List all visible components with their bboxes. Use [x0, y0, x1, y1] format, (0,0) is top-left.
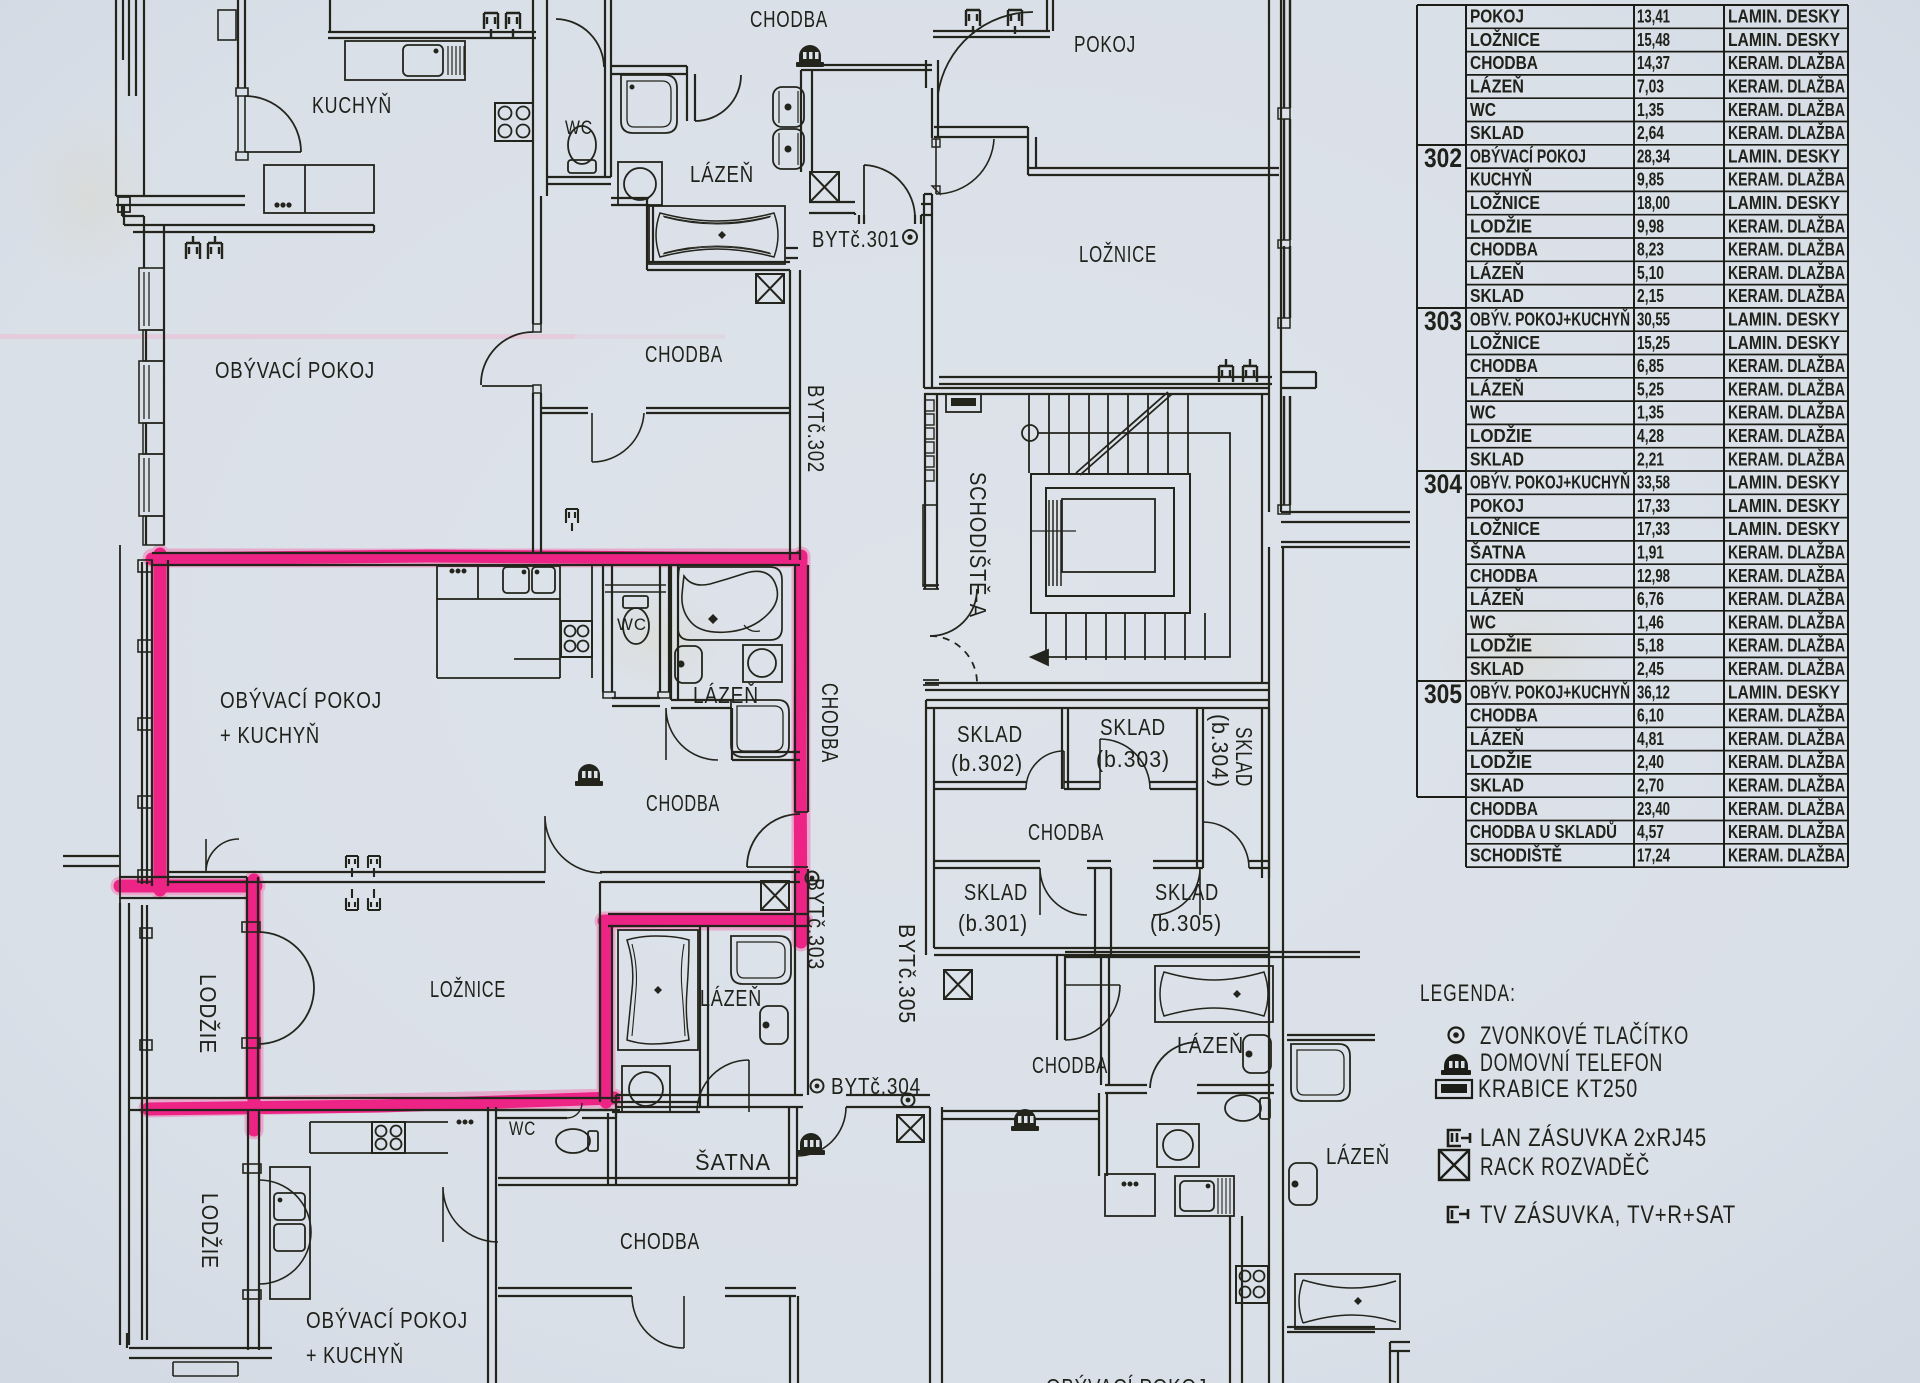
svg-text:KERAM. DLAŽBA: KERAM. DLAŽBA [1728, 611, 1845, 632]
svg-text:(b.305): (b.305) [1150, 910, 1222, 936]
svg-text:CHODBA: CHODBA [750, 6, 828, 32]
svg-text:2,70: 2,70 [1637, 776, 1664, 796]
svg-text:2,64: 2,64 [1637, 123, 1664, 143]
svg-text:CHODBA: CHODBA [1470, 356, 1538, 376]
svg-text:KERAM. DLAŽBA: KERAM. DLAŽBA [1728, 658, 1845, 679]
svg-text:CHODBA: CHODBA [1470, 566, 1538, 586]
svg-text:LÁZEŇ: LÁZEŇ [700, 985, 762, 1011]
svg-text:CHODBA: CHODBA [1470, 799, 1538, 819]
svg-text:KERAM. DLAŽBA: KERAM. DLAŽBA [1728, 402, 1845, 423]
svg-text:LAMIN. DESKY: LAMIN. DESKY [1728, 7, 1840, 27]
svg-text:BYTč.301: BYTč.301 [812, 226, 900, 252]
svg-text:(b.302): (b.302) [951, 750, 1023, 776]
svg-text:CHODBA: CHODBA [645, 341, 723, 367]
svg-text:23,40: 23,40 [1637, 799, 1670, 819]
svg-text:15,25: 15,25 [1637, 333, 1670, 353]
svg-text:KUCHYŇ: KUCHYŇ [1470, 169, 1532, 190]
svg-text:1,46: 1,46 [1637, 612, 1664, 632]
svg-text:LOŽNICE: LOŽNICE [1470, 29, 1540, 50]
svg-text:LODŽIE: LODŽIE [1470, 751, 1532, 772]
svg-text:LOŽNICE: LOŽNICE [1470, 518, 1540, 539]
svg-text:1,35: 1,35 [1637, 403, 1664, 423]
svg-text:302: 302 [1424, 143, 1462, 173]
svg-text:POKOJ: POKOJ [1470, 7, 1524, 27]
svg-text:8,23: 8,23 [1637, 240, 1664, 260]
svg-text:CHODBA: CHODBA [1028, 819, 1104, 845]
svg-text:LOŽNICE: LOŽNICE [1470, 332, 1540, 353]
svg-text:5,25: 5,25 [1637, 379, 1664, 399]
svg-text:LAMIN. DESKY: LAMIN. DESKY [1728, 193, 1840, 213]
svg-text:2,21: 2,21 [1637, 449, 1664, 469]
svg-text:SKLAD: SKLAD [1470, 286, 1524, 306]
svg-text:KRABICE KT250: KRABICE KT250 [1478, 1075, 1638, 1103]
svg-text:9,85: 9,85 [1637, 170, 1664, 190]
svg-text:KUCHYŇ: KUCHYŇ [312, 92, 392, 118]
svg-text:12,98: 12,98 [1637, 566, 1670, 586]
svg-text:17,33: 17,33 [1637, 519, 1670, 539]
svg-text:WC: WC [617, 615, 647, 634]
svg-text:LÁZEŇ: LÁZEŇ [1470, 378, 1524, 399]
svg-text:KERAM. DLAŽBA: KERAM. DLAŽBA [1728, 705, 1845, 726]
svg-text:LAMIN. DESKY: LAMIN. DESKY [1728, 30, 1840, 50]
svg-text:+ KUCHYŇ: + KUCHYŇ [220, 722, 320, 748]
svg-text:BYTč.304: BYTč.304 [831, 1073, 921, 1099]
svg-text:CHODBA: CHODBA [646, 790, 720, 816]
svg-text:KERAM. DLAŽBA: KERAM. DLAŽBA [1728, 844, 1845, 865]
svg-text:LAMIN. DESKY: LAMIN. DESKY [1728, 473, 1840, 493]
svg-text:LODŽIE: LODŽIE [1470, 425, 1532, 446]
svg-text:LAMIN. DESKY: LAMIN. DESKY [1728, 333, 1840, 353]
svg-text:KERAM. DLAŽBA: KERAM. DLAŽBA [1728, 542, 1845, 563]
svg-text:TV ZÁSUVKA, TV+R+SAT: TV ZÁSUVKA, TV+R+SAT [1480, 1200, 1736, 1229]
svg-text:305: 305 [1424, 679, 1462, 709]
svg-text:LÁZEŇ: LÁZEŇ [1470, 588, 1524, 609]
svg-text:KERAM. DLAŽBA: KERAM. DLAŽBA [1728, 751, 1845, 772]
svg-text:OBÝVACÍ POKOJ: OBÝVACÍ POKOJ [220, 687, 382, 713]
svg-text:SCHODIŠTĚ: SCHODIŠTĚ [1470, 844, 1562, 865]
svg-text:7,03: 7,03 [1637, 77, 1664, 97]
svg-text:BYTč.303: BYTč.303 [803, 878, 829, 970]
svg-text:KERAM. DLAŽBA: KERAM. DLAŽBA [1728, 775, 1845, 796]
svg-text:ZVONKOVÉ TLAČÍTKO: ZVONKOVÉ TLAČÍTKO [1480, 1021, 1689, 1050]
svg-text:LÁZEŇ: LÁZEŇ [1470, 76, 1524, 97]
svg-text:KERAM. DLAŽBA: KERAM. DLAŽBA [1728, 76, 1845, 97]
svg-text:LEGENDA:: LEGENDA: [1420, 980, 1516, 1007]
svg-text:OBÝVACÍ POKOJ: OBÝVACÍ POKOJ [215, 357, 375, 383]
svg-text:SKLAD: SKLAD [1155, 879, 1219, 905]
svg-text:LOŽNICE: LOŽNICE [1470, 192, 1540, 213]
svg-text:SKLAD: SKLAD [1231, 727, 1257, 787]
svg-text:KERAM. DLAŽBA: KERAM. DLAŽBA [1728, 52, 1845, 73]
svg-text:POKOJ: POKOJ [1470, 496, 1524, 516]
svg-text:KERAM. DLAŽBA: KERAM. DLAŽBA [1728, 448, 1845, 469]
svg-text:(b.301): (b.301) [958, 910, 1028, 936]
svg-text:5,18: 5,18 [1637, 636, 1664, 656]
svg-text:5,10: 5,10 [1637, 263, 1664, 283]
svg-text:2,40: 2,40 [1637, 752, 1664, 772]
svg-text:OBÝV. POKOJ+KUCHYŇ: OBÝV. POKOJ+KUCHYŇ [1470, 472, 1630, 493]
svg-text:LODŽIE: LODŽIE [197, 1193, 223, 1269]
svg-text:CHODBA: CHODBA [1470, 240, 1538, 260]
svg-text:KERAM. DLAŽBA: KERAM. DLAŽBA [1728, 635, 1845, 656]
svg-text:OBÝV. POKOJ+KUCHYŇ: OBÝV. POKOJ+KUCHYŇ [1470, 681, 1630, 702]
svg-text:BYTč.302: BYTč.302 [803, 385, 829, 473]
svg-text:13,41: 13,41 [1637, 7, 1670, 27]
svg-text:ŠATNA: ŠATNA [695, 1148, 771, 1175]
svg-text:WC: WC [1470, 403, 1496, 423]
svg-text:2,45: 2,45 [1637, 659, 1664, 679]
svg-text:4,28: 4,28 [1637, 426, 1664, 446]
svg-text:CHODBA U SKLADŮ: CHODBA U SKLADŮ [1470, 820, 1617, 842]
svg-text:36,12: 36,12 [1637, 682, 1670, 702]
svg-text:LÁZEŇ: LÁZEŇ [690, 161, 754, 187]
svg-text:303: 303 [1424, 306, 1462, 336]
svg-text:LAMIN. DESKY: LAMIN. DESKY [1728, 496, 1840, 516]
svg-text:2,15: 2,15 [1637, 286, 1664, 306]
svg-text:KERAM. DLAŽBA: KERAM. DLAŽBA [1728, 169, 1845, 190]
svg-text:LÁZEŇ: LÁZEŇ [693, 682, 759, 708]
svg-text:KERAM. DLAŽBA: KERAM. DLAŽBA [1728, 285, 1845, 306]
svg-text:+ KUCHYŇ: + KUCHYŇ [306, 1342, 404, 1368]
svg-text:KERAM. DLAŽBA: KERAM. DLAŽBA [1728, 122, 1845, 143]
svg-text:KERAM. DLAŽBA: KERAM. DLAŽBA [1728, 262, 1845, 283]
svg-text:18,00: 18,00 [1637, 193, 1670, 213]
svg-text:LAMIN. DESKY: LAMIN. DESKY [1728, 519, 1840, 539]
svg-text:KERAM. DLAŽBA: KERAM. DLAŽBA [1728, 565, 1845, 586]
svg-text:(b.304): (b.304) [1207, 714, 1233, 788]
svg-text:SKLAD: SKLAD [1470, 776, 1524, 796]
svg-text:CHODBA: CHODBA [817, 683, 843, 763]
svg-text:OBÝVACÍ POKOJ: OBÝVACÍ POKOJ [1470, 145, 1586, 166]
svg-text:SKLAD: SKLAD [1470, 659, 1524, 679]
svg-text:17,24: 17,24 [1637, 845, 1670, 865]
svg-text:14,37: 14,37 [1637, 53, 1670, 73]
svg-text:LAMIN. DESKY: LAMIN. DESKY [1728, 146, 1840, 166]
svg-text:KERAM. DLAŽBA: KERAM. DLAŽBA [1728, 239, 1845, 260]
svg-text:CHODBA: CHODBA [1470, 706, 1538, 726]
svg-text:LODŽIE: LODŽIE [1470, 215, 1532, 236]
svg-text:KERAM. DLAŽBA: KERAM. DLAŽBA [1728, 99, 1845, 120]
svg-text:WC: WC [1470, 100, 1496, 120]
svg-text:OBÝVACÍ POKOJ: OBÝVACÍ POKOJ [1046, 1374, 1207, 1383]
svg-text:4,81: 4,81 [1637, 729, 1664, 749]
svg-text:POKOJ: POKOJ [1074, 31, 1136, 57]
svg-text:LAMIN. DESKY: LAMIN. DESKY [1728, 682, 1840, 702]
svg-text:SCHODIŠTĚ-A: SCHODIŠTĚ-A [965, 472, 992, 618]
svg-text:SKLAD: SKLAD [964, 879, 1028, 905]
svg-text:OBÝV. POKOJ+KUCHYŇ: OBÝV. POKOJ+KUCHYŇ [1470, 309, 1630, 330]
svg-text:33,58: 33,58 [1637, 473, 1670, 493]
svg-text:KERAM. DLAŽBA: KERAM. DLAŽBA [1728, 821, 1845, 842]
svg-text:KERAM. DLAŽBA: KERAM. DLAŽBA [1728, 425, 1845, 446]
svg-text:BYTč.305: BYTč.305 [894, 924, 920, 1024]
svg-text:LOŽNICE: LOŽNICE [1079, 241, 1157, 267]
svg-text:CHODBA: CHODBA [1470, 53, 1538, 73]
svg-text:CHODBA: CHODBA [620, 1228, 700, 1254]
svg-text:KERAM. DLAŽBA: KERAM. DLAŽBA [1728, 798, 1845, 819]
svg-text:(b.303): (b.303) [1096, 746, 1170, 772]
svg-text:304: 304 [1424, 469, 1462, 499]
svg-text:17,33: 17,33 [1637, 496, 1670, 516]
svg-text:LÁZEŇ: LÁZEŇ [1470, 262, 1524, 283]
svg-text:LAN ZÁSUVKA 2xRJ45: LAN ZÁSUVKA 2xRJ45 [1480, 1123, 1707, 1152]
svg-text:ŠATNA: ŠATNA [1470, 542, 1526, 563]
svg-text:CHODBA: CHODBA [1032, 1052, 1108, 1078]
svg-text:WC: WC [509, 1119, 536, 1140]
svg-text:9,98: 9,98 [1637, 216, 1664, 236]
svg-text:SKLAD: SKLAD [1470, 123, 1524, 143]
svg-text:SKLAD: SKLAD [957, 721, 1023, 747]
svg-text:SKLAD: SKLAD [1100, 714, 1166, 740]
svg-text:DOMOVNÍ TELEFON: DOMOVNÍ TELEFON [1480, 1048, 1663, 1077]
svg-text:KERAM. DLAŽBA: KERAM. DLAŽBA [1728, 728, 1845, 749]
svg-text:LAMIN. DESKY: LAMIN. DESKY [1728, 310, 1840, 330]
svg-text:LOŽNICE: LOŽNICE [430, 976, 506, 1002]
svg-text:1,35: 1,35 [1637, 100, 1664, 120]
svg-text:LÁZEŇ: LÁZEŇ [1326, 1143, 1390, 1169]
svg-text:WC: WC [1470, 612, 1496, 632]
svg-text:15,48: 15,48 [1637, 30, 1670, 50]
svg-text:28,34: 28,34 [1637, 146, 1670, 166]
svg-text:RACK ROZVADĚČ: RACK ROZVADĚČ [1480, 1152, 1650, 1181]
svg-text:LÁZEŇ: LÁZEŇ [1470, 728, 1524, 749]
svg-text:KERAM. DLAŽBA: KERAM. DLAŽBA [1728, 215, 1845, 236]
svg-text:SKLAD: SKLAD [1470, 449, 1524, 469]
svg-text:KERAM. DLAŽBA: KERAM. DLAŽBA [1728, 378, 1845, 399]
svg-text:WC: WC [565, 118, 593, 139]
svg-text:KERAM. DLAŽBA: KERAM. DLAŽBA [1728, 588, 1845, 609]
svg-text:6,10: 6,10 [1637, 706, 1664, 726]
svg-text:LODŽIE: LODŽIE [1470, 635, 1532, 656]
svg-text:OBÝVACÍ POKOJ: OBÝVACÍ POKOJ [306, 1307, 468, 1333]
svg-text:LÁZEŇ: LÁZEŇ [1177, 1032, 1244, 1058]
svg-text:6,85: 6,85 [1637, 356, 1664, 376]
svg-text:1,91: 1,91 [1637, 543, 1664, 563]
svg-text:LODŽIE: LODŽIE [195, 974, 221, 1054]
svg-text:4,57: 4,57 [1637, 822, 1664, 842]
svg-text:KERAM. DLAŽBA: KERAM. DLAŽBA [1728, 355, 1845, 376]
svg-text:6,76: 6,76 [1637, 589, 1664, 609]
svg-text:30,55: 30,55 [1637, 310, 1670, 330]
